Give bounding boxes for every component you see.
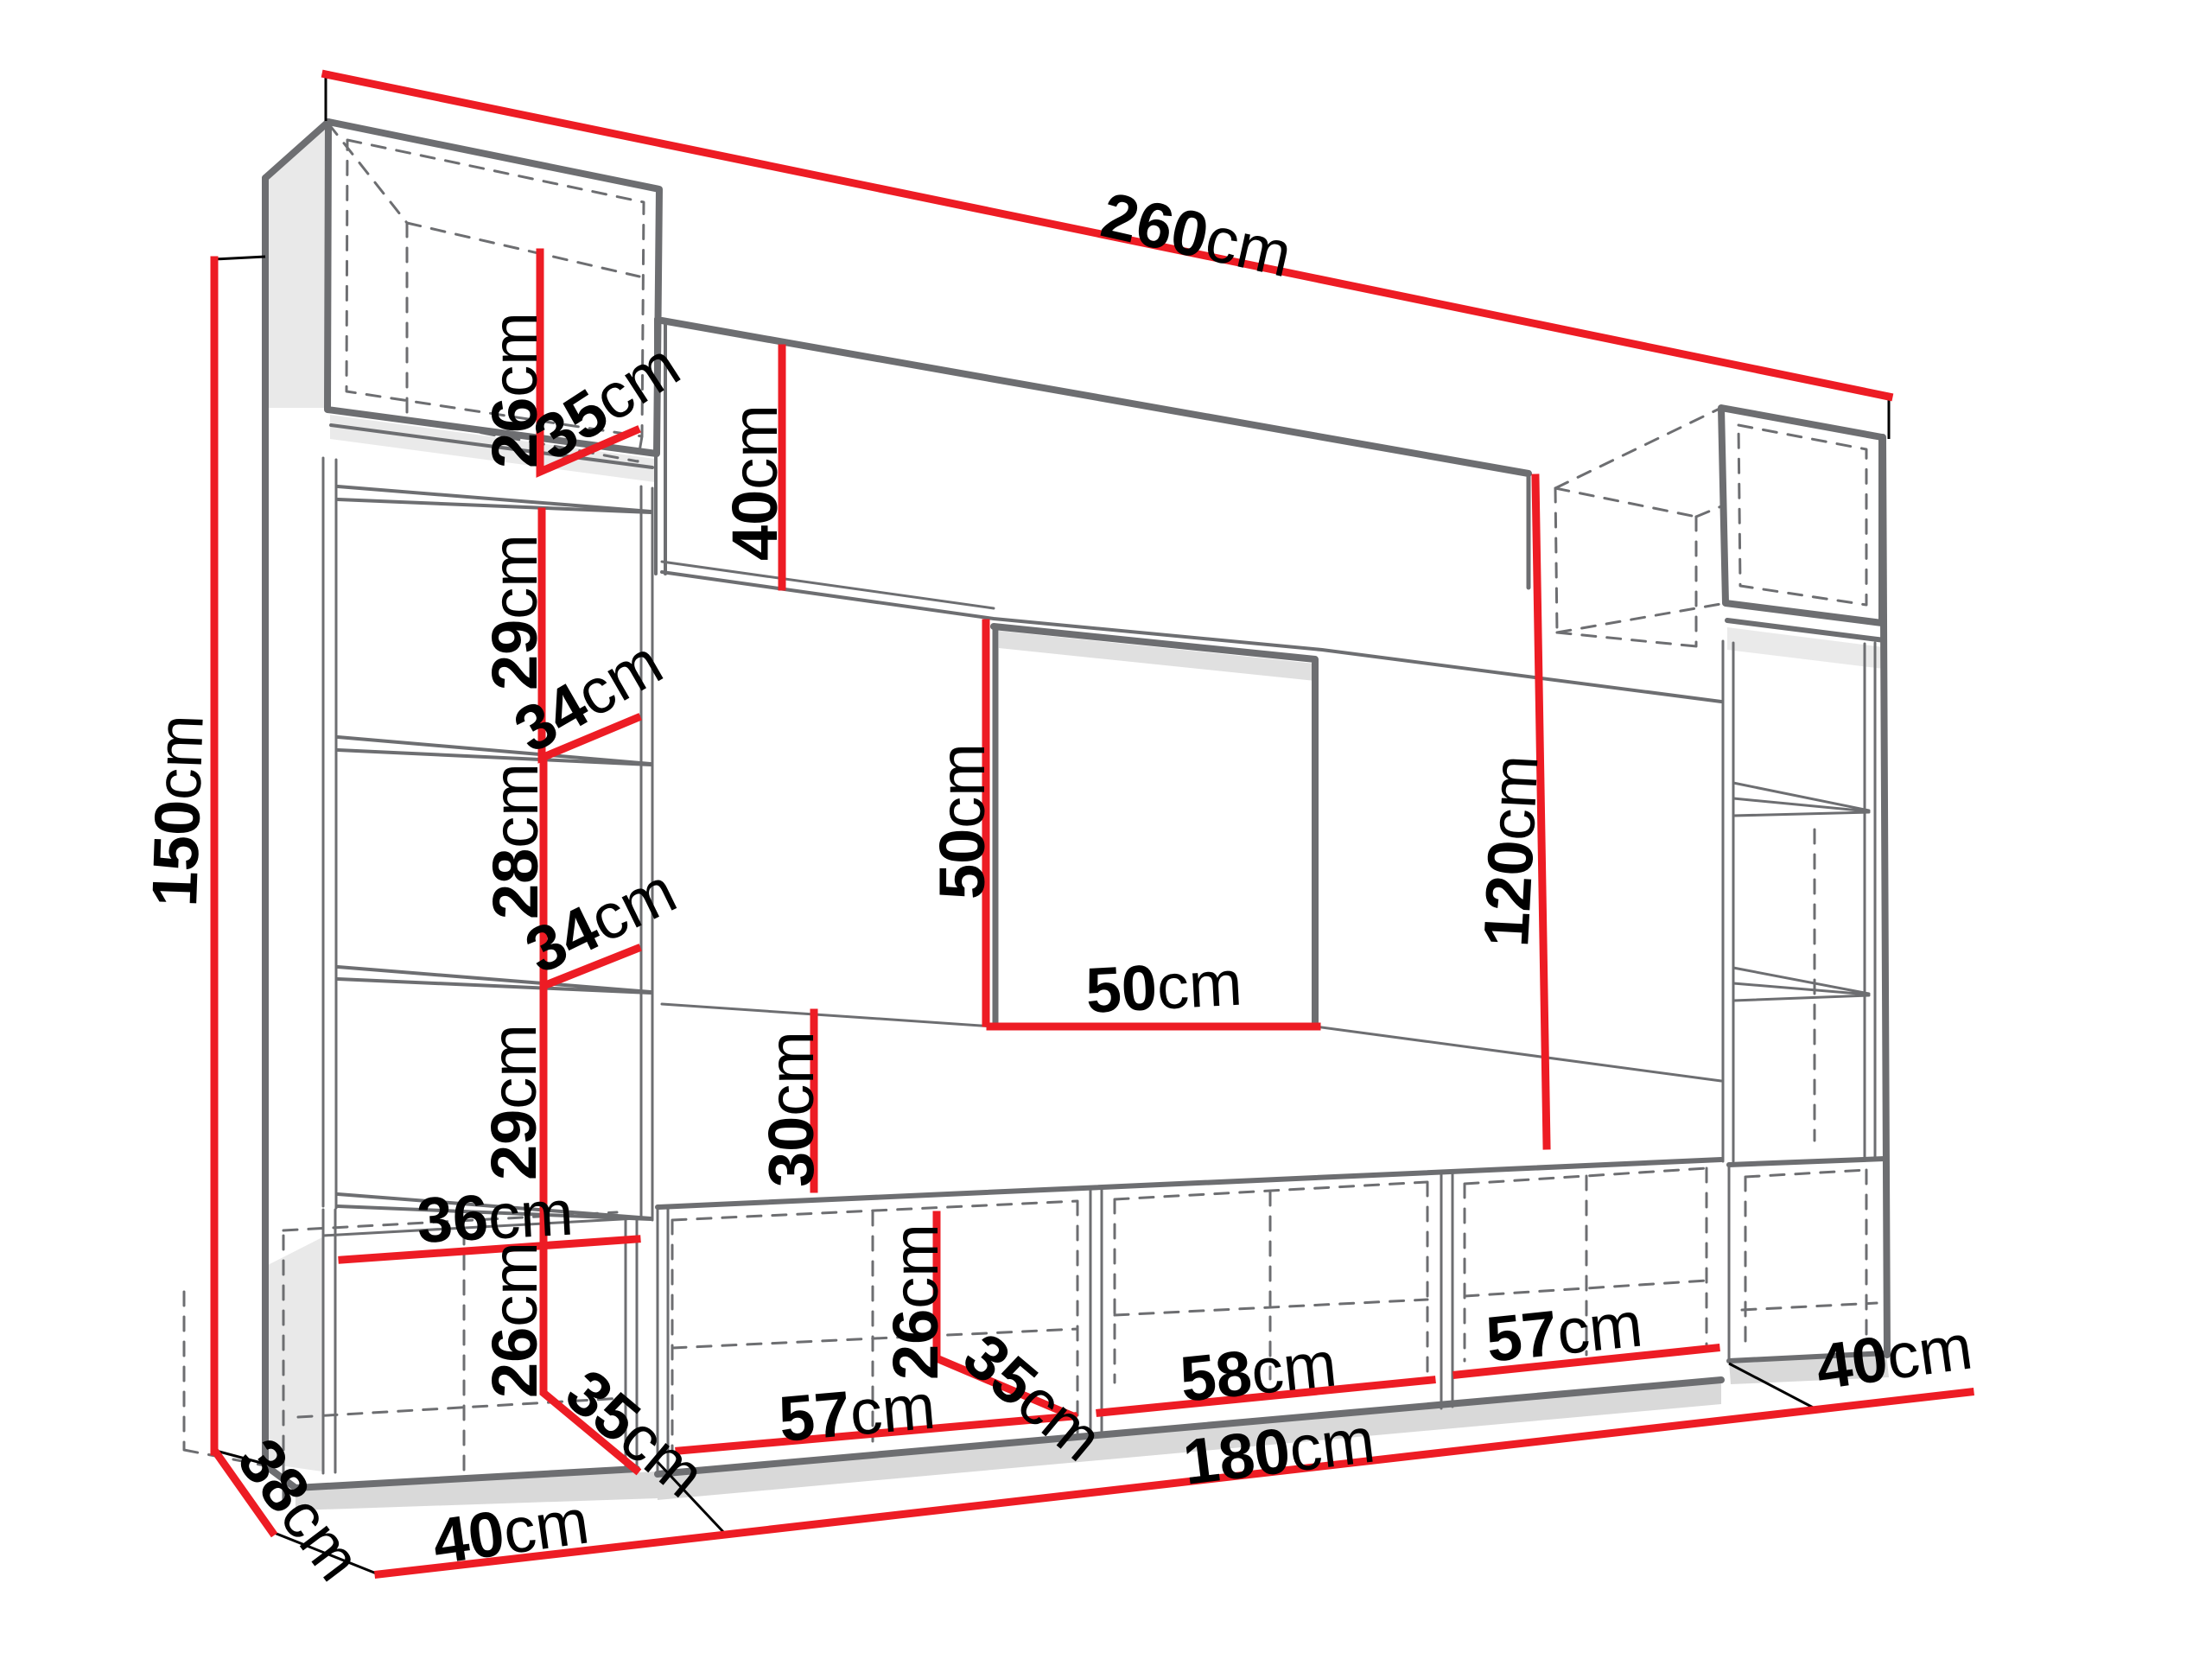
svg-text:50cm: 50cm xyxy=(1084,947,1243,1027)
svg-text:40cm: 40cm xyxy=(719,404,791,561)
svg-text:26cm: 26cm xyxy=(880,1224,951,1380)
svg-text:28cm: 28cm xyxy=(480,763,551,919)
svg-text:26cm: 26cm xyxy=(479,312,550,468)
svg-text:120cm: 120cm xyxy=(1470,753,1552,949)
svg-text:30cm: 30cm xyxy=(755,1031,827,1187)
svg-text:57cm: 57cm xyxy=(776,1370,938,1454)
svg-text:150cm: 150cm xyxy=(138,714,217,908)
svg-text:26cm: 26cm xyxy=(479,1242,550,1398)
svg-text:50cm: 50cm xyxy=(926,743,998,899)
svg-text:29cm: 29cm xyxy=(479,534,550,690)
svg-text:29cm: 29cm xyxy=(478,1024,550,1180)
